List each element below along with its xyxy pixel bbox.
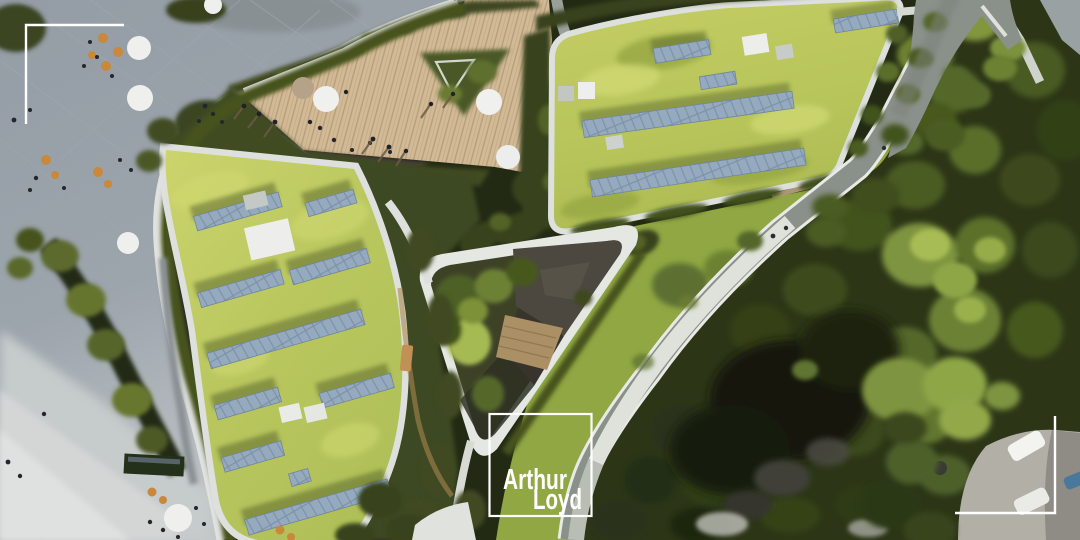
svg-text:Loyd: Loyd: [533, 484, 582, 516]
